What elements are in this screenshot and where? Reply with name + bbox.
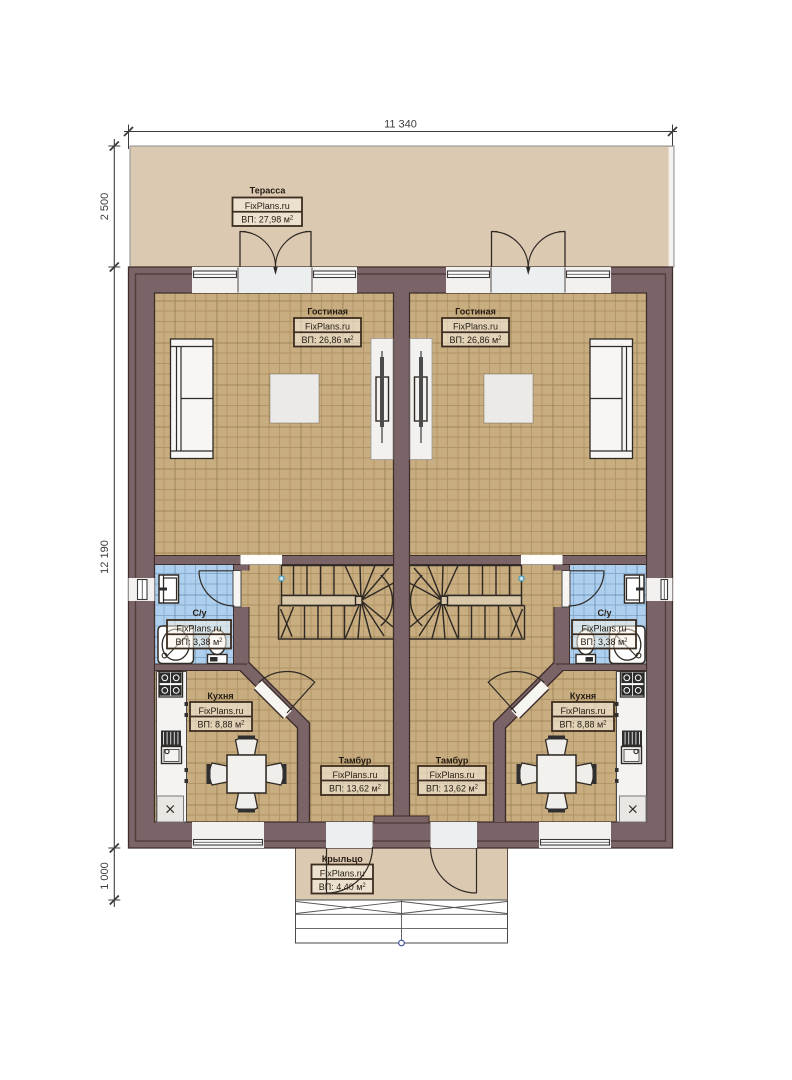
svg-text:ВП: 26,86 м2: ВП: 26,86 м2 (449, 335, 502, 345)
svg-text:FixPlans.ru: FixPlans.ru (176, 624, 221, 634)
svg-text:FixPlans.ru: FixPlans.ru (245, 201, 290, 211)
svg-text:Кухня: Кухня (207, 691, 233, 701)
svg-text:FixPlans.ru: FixPlans.ru (581, 624, 626, 634)
svg-text:FixPlans.ru: FixPlans.ru (305, 322, 350, 332)
svg-text:ВП: 3,38 м2: ВП: 3,38 м2 (175, 637, 223, 647)
svg-text:FixPlans.ru: FixPlans.ru (429, 770, 474, 780)
svg-text:Гостиная: Гостиная (307, 307, 348, 317)
svg-text:Тамбур: Тамбур (339, 756, 372, 766)
svg-text:FixPlans.ru: FixPlans.ru (198, 706, 243, 716)
svg-text:ВП: 3,38 м2: ВП: 3,38 м2 (580, 637, 628, 647)
svg-text:11 340: 11 340 (384, 119, 417, 131)
svg-text:ВП: 13,62 м2: ВП: 13,62 м2 (329, 783, 382, 793)
svg-text:ВП: 26,86 м2: ВП: 26,86 м2 (301, 335, 354, 345)
svg-text:С/у: С/у (597, 608, 611, 618)
svg-text:ВП: 13,62 м2: ВП: 13,62 м2 (426, 783, 479, 793)
svg-text:Кухня: Кухня (570, 691, 596, 701)
svg-text:2 500: 2 500 (99, 193, 111, 221)
svg-text:ВП: 8,88 м2: ВП: 8,88 м2 (197, 719, 245, 729)
svg-text:Гостиная: Гостиная (455, 307, 496, 317)
svg-text:12 190: 12 190 (99, 540, 111, 574)
svg-text:С/у: С/у (192, 608, 206, 618)
svg-text:FixPlans.ru: FixPlans.ru (332, 770, 377, 780)
svg-text:Тамбур: Тамбур (436, 756, 469, 766)
svg-text:ВП: 27,98 м2: ВП: 27,98 м2 (241, 214, 294, 224)
svg-text:Крыльцо: Крыльцо (322, 854, 363, 864)
svg-text:FixPlans.ru: FixPlans.ru (560, 706, 605, 716)
svg-text:ВП: 8,88 м2: ВП: 8,88 м2 (559, 719, 607, 729)
svg-text:Терасса: Терасса (250, 186, 287, 196)
svg-text:1 000: 1 000 (99, 862, 111, 890)
svg-text:FixPlans.ru: FixPlans.ru (453, 322, 498, 332)
